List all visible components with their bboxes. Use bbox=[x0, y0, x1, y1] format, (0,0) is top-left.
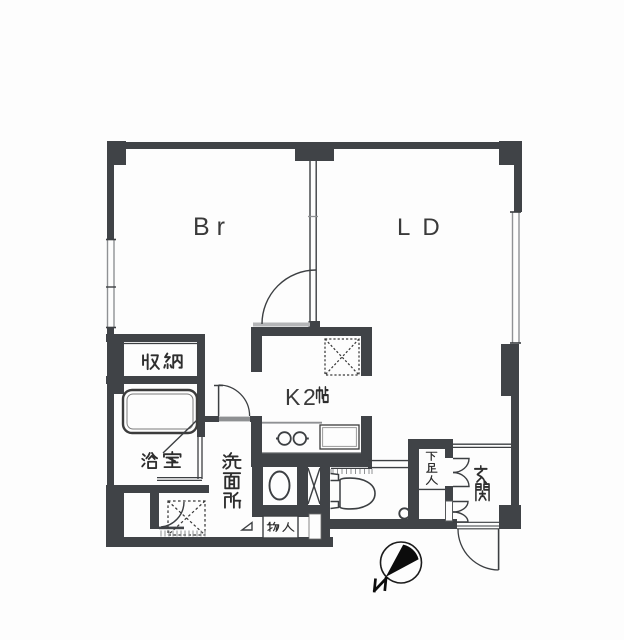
svg-text:LD: LD bbox=[397, 214, 452, 241]
svg-text:K: K bbox=[285, 384, 301, 410]
svg-text:2: 2 bbox=[303, 384, 316, 410]
svg-text:Br: Br bbox=[193, 213, 232, 241]
